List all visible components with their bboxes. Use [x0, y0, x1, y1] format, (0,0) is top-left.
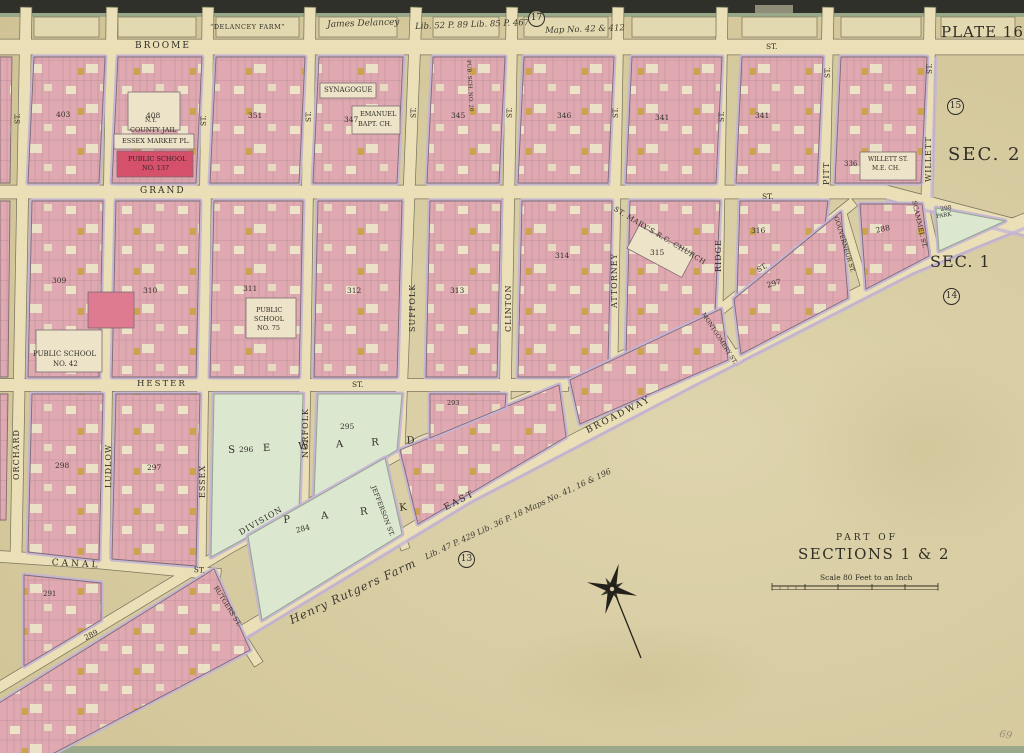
legend-title: SECTIONS 1 & 2: [798, 547, 950, 562]
block-number: 293: [447, 400, 459, 407]
street-label-grand: GRAND: [140, 187, 186, 196]
block-number: 298: [55, 462, 69, 470]
landmark-ps42-l2: NO. 42: [53, 361, 78, 368]
block-number: 315: [650, 249, 664, 257]
block-number: 309: [52, 277, 66, 285]
section-1-label: SEC. 1: [930, 254, 991, 270]
atlas-map-canvas: PLATE 16. SEC. 2 SEC. 1 17 15 14 13 PART…: [0, 0, 1024, 753]
street-label-st: ST.: [507, 107, 514, 118]
block-number: 291: [43, 591, 56, 598]
landmark-ps75-l1: PUBLIC: [256, 307, 282, 314]
block-number: 345: [451, 112, 465, 120]
corner-pencil-note: 69: [999, 730, 1013, 742]
landmark-willett-ch-l2: M.E. CH.: [872, 166, 900, 172]
block-number: 341: [755, 112, 769, 120]
block-number: 311: [243, 285, 257, 293]
street-label-pitt: PITT: [823, 162, 831, 185]
landmark-ps42-l1: PUBLIC SCHOOL: [33, 351, 96, 358]
street-label-st: ST.: [306, 111, 313, 122]
landmark-emanuel-l2: BAPT. CH.: [358, 121, 392, 128]
plate-title: PLATE 16.: [941, 25, 1024, 40]
street-label-attorney: ATTORNEY: [611, 253, 619, 308]
block-number: 316: [751, 227, 765, 235]
block-number: 351: [248, 112, 262, 120]
street-label-st: ST.: [613, 107, 620, 118]
street-label-canal-st: ST.: [193, 566, 205, 574]
block-number: 296: [239, 446, 253, 454]
block-number: 408: [146, 112, 160, 120]
landmark-essex-market: ESSEX MARKET PL.: [122, 138, 190, 145]
street-label-st: ST.: [927, 63, 934, 74]
street-label-ludlow: LUDLOW: [105, 444, 113, 488]
street-label-broome: BROOME: [135, 42, 191, 51]
block-number: 313: [450, 287, 464, 295]
landmark-ps75-l2: SCHOOL: [254, 316, 284, 323]
block-number: 312: [347, 287, 361, 295]
block-number: 347: [344, 116, 358, 124]
legend-scale-note: Scale 80 Feet to an Inch: [820, 574, 912, 582]
landmark-county-jail-l2: COUNTY JAIL: [130, 127, 176, 134]
landmark-synagogue: SYNAGOGUE: [324, 87, 373, 94]
street-label-orchard: ORCHARD: [13, 429, 21, 480]
plate-badge-14: 14: [943, 288, 960, 305]
street-label-st: ST.: [719, 111, 726, 122]
street-label-grand-st: ST.: [762, 193, 773, 201]
landmark-emanuel-l1: EMANUEL: [360, 111, 396, 118]
street-label-broome-st: ST.: [766, 43, 777, 51]
block-number: 297: [147, 464, 161, 472]
plate-badge-13: 13: [458, 551, 475, 568]
plate-badge-17: 17: [528, 10, 545, 27]
block-number: 295: [340, 423, 354, 431]
street-label-ridge: RIDGE: [715, 239, 723, 272]
landmark-ps75-l3: NO. 75: [257, 325, 280, 332]
block-number: 403: [56, 111, 70, 119]
street-label-willett: WILLETT: [925, 136, 933, 182]
scale-bar: [772, 583, 938, 591]
block-number: 346: [557, 112, 571, 120]
plate-badge-15: 15: [947, 98, 964, 115]
section-2-label: SEC. 2: [948, 146, 1022, 164]
margin-farm-note: “DELANCEY FARM”: [210, 24, 285, 31]
street-label-suffolk: SUFFOLK: [409, 284, 417, 332]
block-number: 310: [143, 287, 157, 295]
street-label-essex: ESSEX: [199, 465, 207, 498]
block-number: 341: [655, 114, 669, 122]
compass-rose: [580, 557, 644, 658]
landmark-willett-ch-l1: WILLETT ST.: [868, 157, 908, 163]
block-number: 314: [555, 252, 569, 260]
street-label-clinton: CLINTON: [505, 285, 513, 333]
landmark-ps137-l1: PUBLIC SCHOOL: [128, 156, 187, 163]
street-label-st: ST.: [201, 115, 208, 126]
street-label-st: ST.: [15, 113, 22, 124]
block-number: 336: [844, 161, 857, 168]
legend-part-of: PART OF: [836, 534, 898, 543]
street-label-st: ST.: [825, 67, 832, 78]
street-label-hester-st: ST.: [352, 381, 363, 389]
landmark-ps137-l2: NO. 137: [142, 165, 169, 172]
street-label-hester: HESTER: [137, 380, 187, 389]
street-label-st: ST.: [411, 107, 418, 118]
